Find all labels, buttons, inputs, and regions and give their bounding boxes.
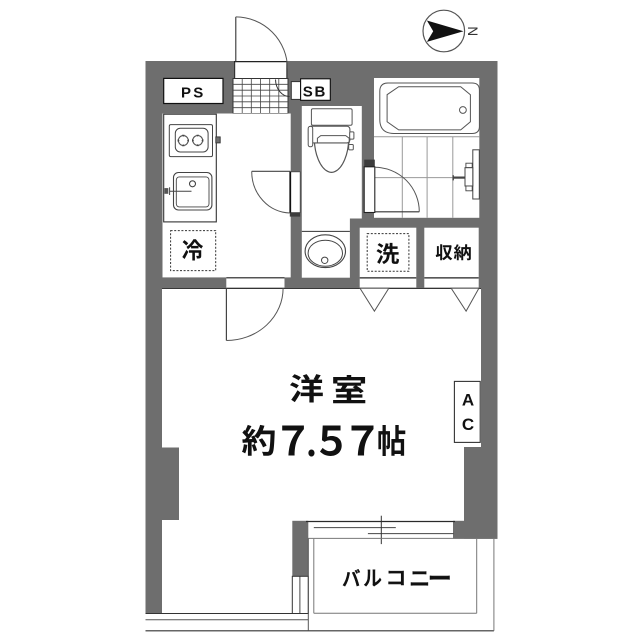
svg-text:S: S <box>193 84 203 101</box>
svg-text:S: S <box>303 83 313 100</box>
svg-text:C: C <box>462 415 474 434</box>
svg-text:P: P <box>181 84 191 101</box>
svg-text:N: N <box>465 26 480 36</box>
svg-text:B: B <box>314 83 325 100</box>
svg-text:A: A <box>462 391 474 410</box>
